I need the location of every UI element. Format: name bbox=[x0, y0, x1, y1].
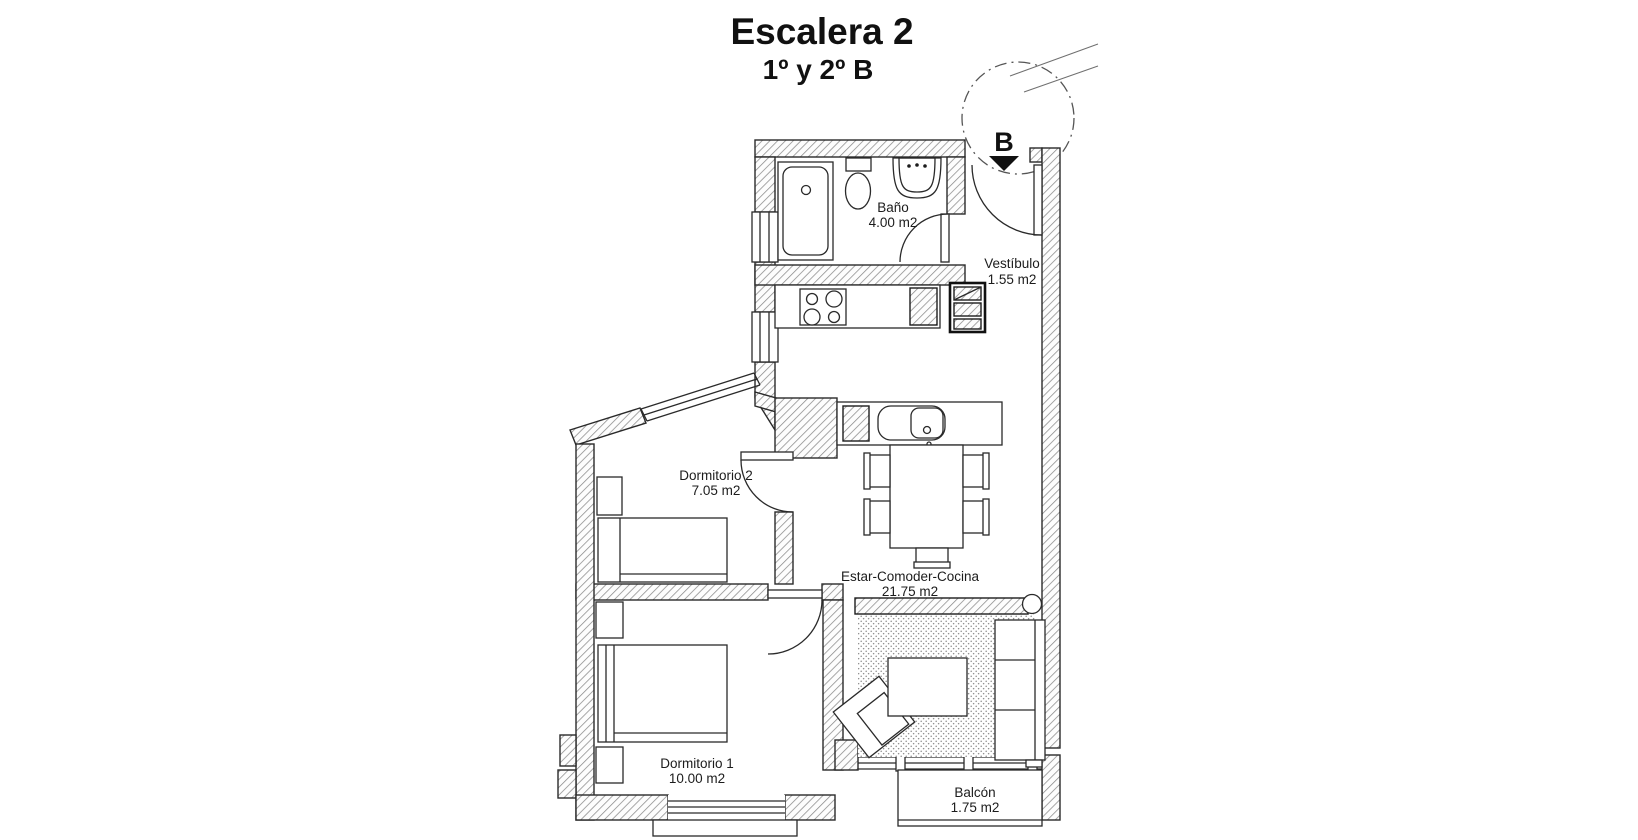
plan-title: Escalera 2 1º y 2º B bbox=[730, 11, 913, 85]
dining-set bbox=[864, 445, 989, 568]
plant bbox=[1023, 595, 1042, 614]
label-dormitorio1-name: Dormitorio 1 bbox=[660, 756, 734, 771]
window-sill-bed1 bbox=[653, 820, 797, 836]
nightstand bbox=[596, 747, 623, 783]
wall-left-bedrooms bbox=[576, 444, 594, 820]
single-bed bbox=[598, 518, 727, 582]
dining-chair bbox=[864, 499, 890, 535]
floor-plan-page: Escalera 2 1º y 2º B B bbox=[0, 0, 1638, 840]
washbasin bbox=[893, 158, 941, 198]
wall-between-bedrooms bbox=[576, 584, 768, 600]
label-balcon-name: Balcón bbox=[954, 785, 995, 800]
title-line-1: Escalera 2 bbox=[730, 11, 913, 52]
kitchen-sink bbox=[878, 406, 945, 446]
label-dormitorio2-area: 7.05 m2 bbox=[692, 483, 741, 498]
label-estar-name: Estar-Comoder-Cocina bbox=[841, 569, 980, 584]
floor-plan-drawing: Escalera 2 1º y 2º B B bbox=[0, 0, 1638, 840]
wall-under-bath bbox=[755, 265, 965, 285]
wall-entry-jamb bbox=[1030, 148, 1042, 162]
bedroom1-door bbox=[768, 590, 822, 654]
bathtub bbox=[778, 162, 833, 260]
label-dormitorio2-name: Dormitorio 2 bbox=[679, 468, 753, 483]
dining-chair bbox=[963, 499, 989, 535]
wall-left-a bbox=[755, 157, 775, 212]
label-vestibulo-area: 1.55 m2 bbox=[988, 272, 1037, 287]
nightstand bbox=[597, 477, 622, 515]
wall-bottom-a bbox=[576, 795, 668, 820]
wall-bath-right bbox=[947, 157, 965, 214]
label-estar-area: 21.75 m2 bbox=[882, 584, 938, 599]
title-line-2: 1º y 2º B bbox=[763, 54, 874, 85]
wall-bottom-b bbox=[785, 795, 835, 820]
toilet bbox=[846, 158, 872, 209]
counter-appliance bbox=[910, 288, 937, 325]
label-dormitorio1-area: 10.00 m2 bbox=[669, 771, 725, 786]
wall-top bbox=[755, 140, 965, 157]
wall-bed2-right bbox=[775, 512, 793, 584]
stove bbox=[800, 289, 846, 325]
wall-stub-island bbox=[775, 398, 837, 458]
label-balcon-area: 1.75 m2 bbox=[951, 800, 1000, 815]
window-bath bbox=[752, 212, 778, 262]
wall-step bbox=[558, 770, 576, 798]
nightstand bbox=[596, 602, 623, 638]
stair-line-1 bbox=[1010, 44, 1098, 76]
island-appliance bbox=[843, 406, 869, 441]
dining-table bbox=[890, 445, 963, 548]
label-bano-area: 4.00 m2 bbox=[869, 215, 918, 230]
double-bed bbox=[598, 645, 727, 742]
dining-chair bbox=[963, 453, 989, 489]
stair-letter: B bbox=[994, 127, 1014, 157]
coffee-table bbox=[888, 658, 967, 716]
island-counter bbox=[837, 402, 1002, 446]
dining-chair bbox=[864, 453, 890, 489]
window-kitchen bbox=[752, 312, 778, 362]
window-diagonal-bed2 bbox=[641, 373, 760, 421]
wall-diagonal-chunk bbox=[570, 408, 646, 445]
wall-balcony-left-chunk bbox=[835, 740, 858, 770]
sofa bbox=[995, 620, 1045, 767]
wall-balcony-right bbox=[1042, 755, 1060, 820]
wall-pilaster bbox=[560, 735, 576, 766]
dining-chair bbox=[914, 548, 950, 568]
stair-line-2 bbox=[1024, 66, 1098, 92]
wall-corner-bed1 bbox=[822, 584, 843, 600]
window-bed1 bbox=[653, 795, 797, 836]
entry-door bbox=[972, 165, 1042, 235]
label-bano-name: Baño bbox=[877, 200, 909, 215]
living-furniture bbox=[833, 595, 1045, 768]
label-vestibulo-name: Vestíbulo bbox=[984, 256, 1040, 271]
bathroom-fixtures bbox=[778, 158, 941, 260]
sideboard bbox=[855, 598, 1028, 614]
tall-unit bbox=[950, 283, 985, 332]
